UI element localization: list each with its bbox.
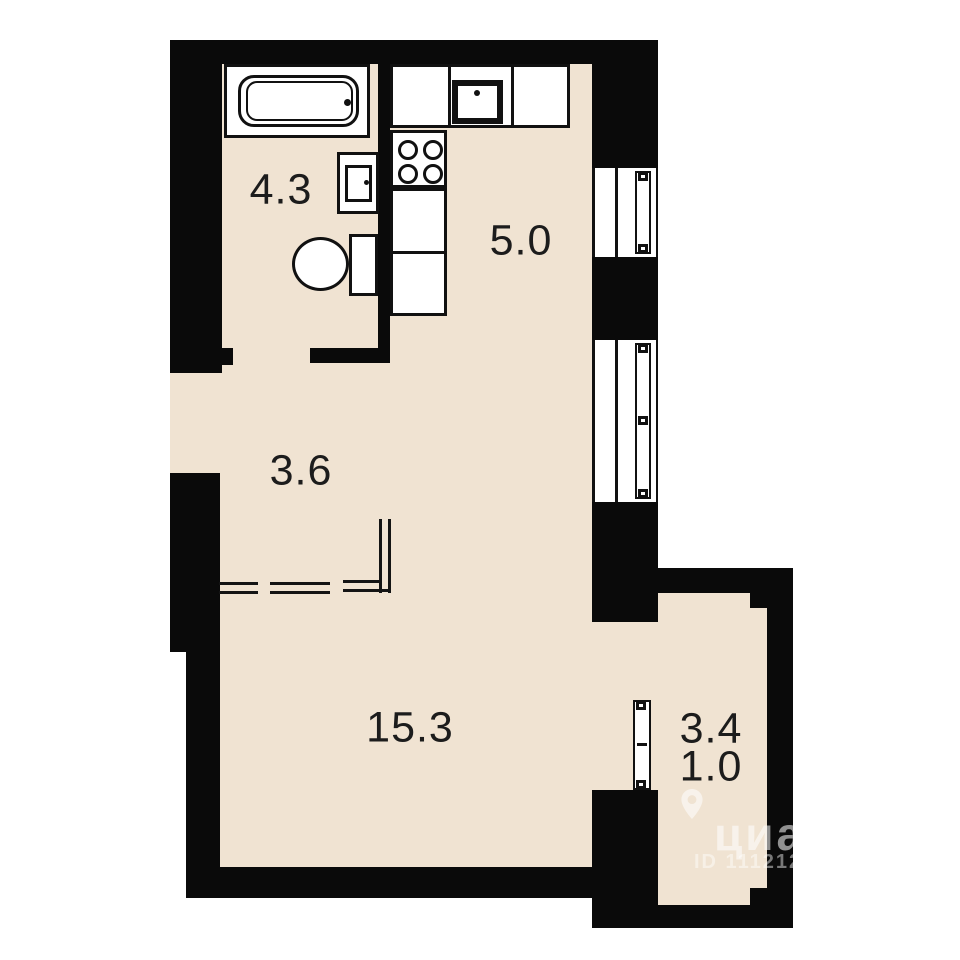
window-handle-icon	[638, 244, 648, 253]
sliding-partition-dash	[270, 582, 330, 585]
washbasin-faucet-icon	[364, 180, 369, 185]
floor-plan: 4.3 5.0 3.6 15.3 3.4 1.0 циан ID 111212	[0, 0, 960, 960]
window-handle-icon	[638, 344, 648, 353]
bathtub-drain-icon	[344, 99, 351, 106]
window-lower	[592, 340, 658, 502]
kitchen-area-label: 5.0	[490, 217, 553, 266]
balcony-door	[633, 700, 651, 790]
bathtub	[224, 64, 370, 138]
window-frame-line	[615, 168, 618, 257]
window-upper	[592, 168, 658, 257]
kitchen-counter-column	[390, 188, 447, 316]
sliding-partition-dash	[270, 591, 330, 594]
wall-balcony-bottom	[658, 905, 793, 928]
window-sash	[635, 171, 651, 254]
wall-right-segment-4	[592, 790, 658, 928]
wall-bathroom-kitchen-divider	[378, 64, 390, 363]
sliding-partition-dash	[219, 591, 258, 594]
wall-balcony-notch-bottom	[750, 888, 767, 905]
toilet-tank	[349, 234, 378, 296]
door-handle-icon	[636, 780, 646, 789]
counter-divider	[448, 67, 451, 125]
counter-divider	[393, 251, 444, 254]
burner-icon	[423, 164, 443, 184]
wall-right-segment-1	[592, 40, 658, 168]
wall-bottom	[186, 867, 658, 898]
watermark-id: ID 111212	[694, 851, 802, 874]
wall-step-cover	[170, 652, 186, 898]
burner-icon	[398, 140, 418, 160]
wall-bathroom-bottom	[310, 348, 390, 363]
sliding-partition-dash	[219, 582, 258, 585]
wall-left-lower	[186, 652, 220, 898]
hallway-area-label: 3.6	[270, 447, 333, 496]
location-pin-icon	[681, 789, 703, 819]
stove	[390, 130, 447, 188]
wall-balcony-notch-top	[750, 593, 767, 608]
kitchen-sink-faucet-icon	[474, 90, 480, 96]
wardrobe-partition-line	[343, 589, 391, 592]
bathtub-basin	[246, 81, 353, 121]
burner-icon	[398, 164, 418, 184]
burner-icon	[423, 140, 443, 160]
window-handle-icon	[638, 172, 648, 181]
toilet	[292, 237, 349, 291]
wardrobe-partition-line	[388, 519, 391, 593]
balcony-reduced-area-label: 1.0	[680, 743, 743, 792]
wall-balcony-right	[767, 568, 793, 928]
wall-left-mid	[170, 473, 220, 652]
wall-bathroom-door-jamb	[219, 348, 233, 365]
bathroom-area-label: 4.3	[250, 166, 313, 215]
window-frame-line	[615, 340, 618, 502]
wall-left-upper	[170, 40, 222, 373]
counter-divider	[511, 67, 514, 125]
wardrobe-partition-line	[343, 580, 380, 583]
wall-right-segment-3	[592, 502, 658, 622]
wall-right-segment-2	[592, 257, 658, 340]
washbasin	[337, 152, 379, 214]
window-handle-icon	[638, 416, 648, 425]
window-sash	[635, 343, 651, 499]
door-handle-icon	[636, 701, 646, 710]
window-handle-icon	[638, 489, 648, 498]
living-room-area-label: 15.3	[366, 704, 454, 753]
door-mullion	[637, 743, 647, 746]
kitchen-sink	[452, 80, 503, 124]
wall-top	[170, 40, 658, 64]
